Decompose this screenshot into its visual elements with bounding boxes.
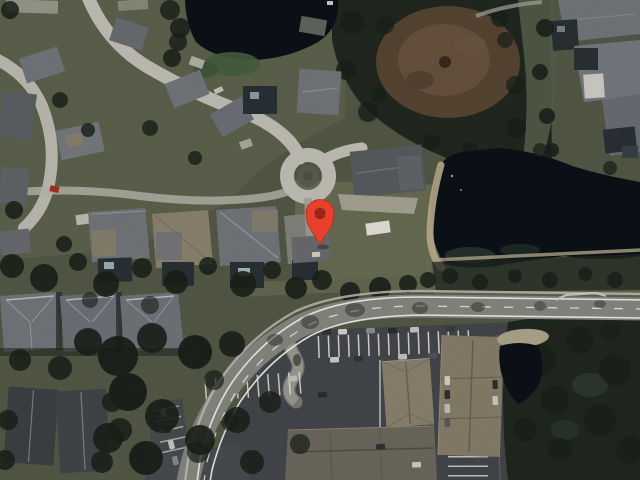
- pin-shadow: [317, 245, 329, 250]
- map-canvas[interactable]: [0, 0, 640, 480]
